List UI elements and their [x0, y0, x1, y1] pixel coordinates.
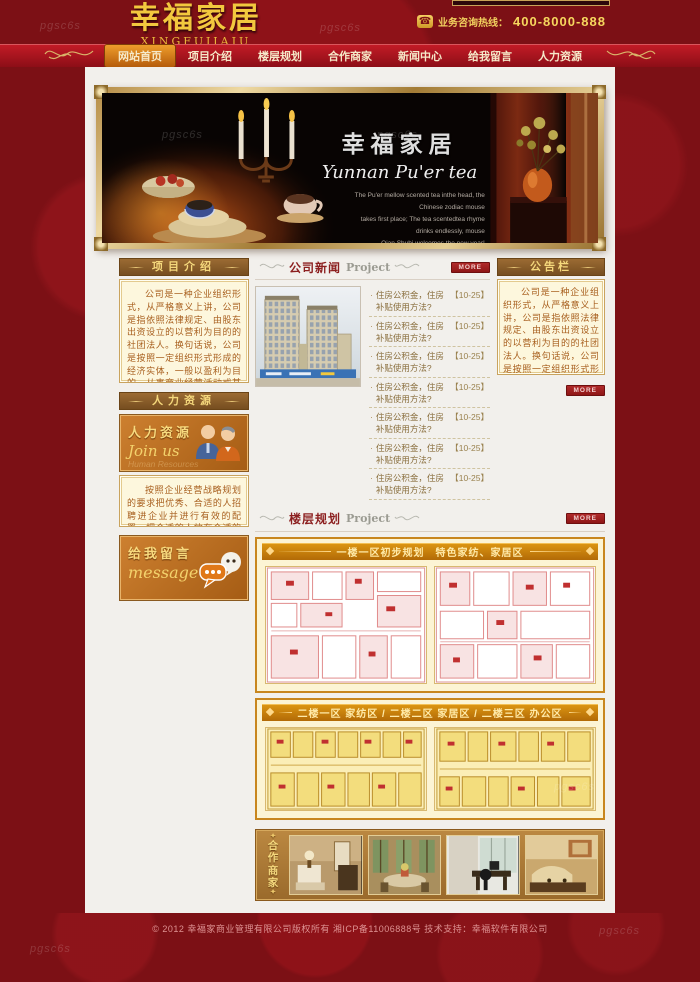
notice-text: 公司是一种企业组织形式，从严格意义上讲，公司是指依照法律规定、由股东出资设立的以…	[503, 286, 599, 375]
news-item-text: 住房公积金，住房补贴使用方法?	[376, 350, 450, 374]
banner-text: 幸福家居 Yunnan Pu'er tea The Pu'er mellow s…	[310, 125, 489, 243]
watermark: pgsc6s	[30, 943, 71, 955]
divider	[569, 712, 582, 713]
nav-item-news[interactable]: 新闻中心	[385, 45, 455, 67]
hr-section-header: 人力资源	[119, 392, 249, 410]
interior-illustration	[290, 836, 362, 894]
notice-more-button[interactable]: MORE	[566, 385, 606, 396]
notice-panel: 公司是一种企业组织形式，从严格意义上讲，公司是指依照法律规定、由股东出资设立的以…	[497, 279, 605, 375]
notice-board: 公告栏 公司是一种企业组织形式，从严格意义上讲，公司是指依照法律规定、由股东出资…	[497, 258, 605, 500]
news-more-button[interactable]: MORE	[451, 262, 491, 273]
message-card[interactable]: 给我留言 message	[119, 535, 249, 601]
news-item[interactable]: ·住房公积金，住房补贴使用方法?【10-25】	[369, 317, 490, 348]
building-illustration	[256, 287, 360, 386]
partner-photo-office[interactable]	[446, 835, 520, 895]
hero-banner[interactable]: pgsc6s pgsc6s 幸福家居 Yunnan Pu'er tea The …	[102, 93, 598, 243]
notice-more-row: MORE	[497, 379, 605, 397]
building-photo[interactable]	[255, 286, 361, 387]
partners-char: 合	[268, 840, 279, 852]
partners-label: ✦ 合 作 商 家 ✦	[262, 833, 284, 897]
news-item-date: 【10-25】	[450, 472, 489, 484]
news-item[interactable]: ·住房公积金，住房补贴使用方法?【10-25】	[369, 439, 490, 470]
diamond-icon	[266, 708, 274, 716]
banner-caption-line: Qian Shubi welcomes the new year!	[310, 238, 485, 243]
phone-icon: ☎	[417, 15, 433, 28]
news-item-text: 住房公积金，住房补贴使用方法?	[376, 381, 450, 405]
nav-item-floor-plan[interactable]: 楼层规划	[245, 45, 315, 67]
news-item-date: 【10-25】	[450, 350, 489, 362]
ornament-icon: ✦	[270, 889, 276, 896]
floorplan-more-button[interactable]: MORE	[566, 513, 606, 524]
news-item[interactable]: ·住房公积金，住房补贴使用方法?【10-25】	[369, 347, 490, 378]
main-content: 项目介绍 公司是一种企业组织形式，从严格意义上讲，公司是指依照法律规定、由股东出…	[85, 249, 615, 901]
hotline-number: 400-8000-888	[513, 14, 606, 29]
project-intro-text: 公司是一种企业组织形式，从严格意义上讲，公司是指依照法律规定、由股东出资设立的以…	[127, 288, 241, 383]
diamond-icon	[586, 708, 594, 716]
bullet-icon: ·	[370, 321, 373, 331]
news-item[interactable]: ·住房公积金，住房补贴使用方法?【10-25】	[369, 378, 490, 409]
partner-photo-bedroom[interactable]	[289, 835, 363, 895]
banner-frame: pgsc6s pgsc6s 幸福家居 Yunnan Pu'er tea The …	[96, 87, 604, 249]
floorplan-image[interactable]	[434, 727, 596, 811]
speech-bubbles-icon	[198, 550, 244, 590]
news-item-date: 【10-25】	[450, 442, 489, 454]
decor-top-strip	[452, 0, 610, 6]
news-item[interactable]: ·住房公积金，住房补贴使用方法?【10-25】	[369, 469, 490, 500]
nav-item-hr[interactable]: 人力资源	[525, 45, 595, 67]
divider	[279, 712, 292, 713]
bullet-icon: ·	[370, 412, 373, 422]
hotline: ☎ 业务咨询热线： 400-8000-888	[417, 14, 606, 29]
nav-item-home[interactable]: 网站首页	[105, 45, 175, 67]
flourish-icon	[259, 510, 285, 528]
news-item-date: 【10-25】	[450, 289, 489, 301]
news-item-text: 住房公积金，住房补贴使用方法?	[376, 472, 450, 496]
flourish-icon	[394, 510, 420, 528]
join-us-card[interactable]: 人力资源 Join us Human Resources	[119, 414, 249, 472]
floorplan-box-2: 二楼一区 家纺区 / 二楼二区 家居区 / 二楼三区 办公区	[255, 698, 605, 820]
bullet-icon: ·	[370, 473, 373, 483]
floorplan-title-en: Project	[346, 512, 390, 525]
news-item-text: 住房公积金，住房补贴使用方法?	[376, 320, 450, 344]
floorplan-2-title: 二楼一区 家纺区 / 二楼二区 家居区 / 二楼三区 办公区	[298, 705, 563, 720]
ornament-icon: ✦	[270, 833, 276, 840]
news-item-date: 【10-25】	[450, 411, 489, 423]
banner-caption-line: takes first place; The tea scentedtea rh…	[310, 214, 485, 226]
partners-strip: ✦ 合 作 商 家 ✦	[255, 829, 605, 901]
nav-item-partners[interactable]: 合作商家	[315, 45, 385, 67]
news-item-text: 住房公积金，住房补贴使用方法?	[376, 411, 450, 435]
site-footer: © 2012 幸福家商业管理有限公司版权所有 湘ICP备11006888号 技术…	[0, 913, 700, 982]
floorplan-title: 楼层规划	[289, 510, 341, 527]
nav-item-message[interactable]: 给我留言	[455, 45, 525, 67]
banner-caption-line: The Pu'er mellow scented tea inthe head,…	[310, 190, 485, 202]
banner-caption-line: Chinese zodiac mouse	[310, 202, 485, 214]
nav-flourish-left-icon	[43, 47, 95, 66]
news-list: ·住房公积金，住房补贴使用方法?【10-25】 ·住房公积金，住房补贴使用方法?…	[369, 286, 490, 500]
news-section: 公司新闻 Project MORE	[255, 258, 490, 500]
watermark: pgsc6s	[320, 22, 361, 34]
news-item-text: 住房公积金，住房补贴使用方法?	[376, 289, 450, 313]
project-intro-header: 项目介绍	[119, 258, 249, 276]
bullet-icon: ·	[370, 382, 373, 392]
banner-subtitle: Yunnan Pu'er tea	[310, 162, 489, 183]
people-icon	[192, 423, 244, 463]
interior-illustration	[526, 836, 598, 894]
divider	[279, 551, 331, 552]
hr-text: 按照企业经营战略规划的要求把优秀、合适的人招聘进企业并进行有效的配置，把合适的人…	[127, 484, 241, 527]
hr-text-panel: 按照企业经营战略规划的要求把优秀、合适的人招聘进企业并进行有效的配置，把合适的人…	[119, 475, 249, 527]
site-logo[interactable]: 幸福家居 XINGFUJIAJU	[116, 0, 276, 48]
floorplan-1-plans	[262, 560, 598, 686]
news-item[interactable]: ·住房公积金，住房补贴使用方法?【10-25】	[369, 408, 490, 439]
floorplan-header: 楼层规划 Project MORE	[255, 510, 605, 532]
partner-photo-dining[interactable]	[368, 835, 442, 895]
content-stack: 公司新闻 Project MORE	[255, 258, 605, 901]
news-title: 公司新闻	[289, 259, 341, 276]
news-body: ·住房公积金，住房补贴使用方法?【10-25】 ·住房公积金，住房补贴使用方法?…	[255, 286, 490, 500]
notice-header: 公告栏	[497, 258, 605, 276]
floorplan-2-plans	[262, 721, 598, 813]
main-nav: 网站首页 项目介绍 楼层规划 合作商家 新闻中心 给我留言 人力资源	[0, 44, 700, 67]
banner-caption-line: drinks endlessly, mouse	[310, 226, 485, 238]
floorplan-1-titlebar: 一楼一区初步规划 特色家纺、家居区	[262, 543, 598, 560]
project-intro-panel: 公司是一种企业组织形式，从严格意义上讲，公司是指依照法律规定、由股东出资设立的以…	[119, 279, 249, 383]
flourish-icon	[394, 258, 420, 276]
news-title-en: Project	[346, 261, 390, 274]
partners-char: 家	[268, 877, 279, 889]
floorplan-image[interactable]	[265, 566, 427, 684]
nav-flourish-right-icon	[605, 47, 657, 66]
copyright-text: © 2012 幸福家商业管理有限公司版权所有 湘ICP备11006888号 技术…	[0, 922, 700, 935]
bullet-icon: ·	[370, 290, 373, 300]
floorplan-2-titlebar: 二楼一区 家纺区 / 二楼二区 家居区 / 二楼三区 办公区	[262, 704, 598, 721]
diamond-icon	[586, 547, 594, 555]
nav-item-project-intro[interactable]: 项目介绍	[175, 45, 245, 67]
news-header: 公司新闻 Project MORE	[255, 258, 490, 280]
interior-illustration	[369, 836, 441, 894]
partners-char: 商	[268, 865, 279, 877]
join-us-ghost-text: Human Resources	[128, 459, 198, 469]
left-sidebar: 项目介绍 公司是一种企业组织形式，从严格意义上讲，公司是指依照法律规定、由股东出…	[119, 258, 249, 901]
partner-photo-suite[interactable]	[525, 835, 599, 895]
banner-caption: The Pu'er mellow scented tea inthe head,…	[310, 190, 489, 243]
news-item-date: 【10-25】	[450, 320, 489, 332]
logo-title: 幸福家居	[116, 0, 276, 37]
floorplan-image[interactable]	[434, 566, 596, 684]
watermark: pgsc6s	[40, 20, 81, 32]
bullet-icon: ·	[370, 351, 373, 361]
hotline-label: 业务咨询热线：	[438, 14, 508, 29]
floorplan-1-title: 一楼一区初步规划 特色家纺、家居区	[337, 544, 524, 559]
divider	[530, 551, 582, 552]
partners-char: 作	[268, 852, 279, 864]
diamond-icon	[266, 547, 274, 555]
news-item-date: 【10-25】	[450, 381, 489, 393]
floorplan-box-1: 一楼一区初步规划 特色家纺、家居区	[255, 537, 605, 693]
interior-illustration	[447, 836, 519, 894]
site-header: pgsc6s pgsc6s 幸福家居 XINGFUJIAJU ☎ 业务咨询热线：…	[0, 0, 700, 44]
bullet-icon: ·	[370, 443, 373, 453]
banner-title: 幸福家居	[310, 125, 489, 159]
news-item[interactable]: ·住房公积金，住房补贴使用方法?【10-25】	[369, 286, 490, 317]
page-body: pgsc6s pgsc6s 幸福家居 Yunnan Pu'er tea The …	[85, 67, 615, 913]
floorplan-image[interactable]	[265, 727, 427, 811]
news-item-text: 住房公积金，住房补贴使用方法?	[376, 442, 450, 466]
flourish-icon	[259, 258, 285, 276]
